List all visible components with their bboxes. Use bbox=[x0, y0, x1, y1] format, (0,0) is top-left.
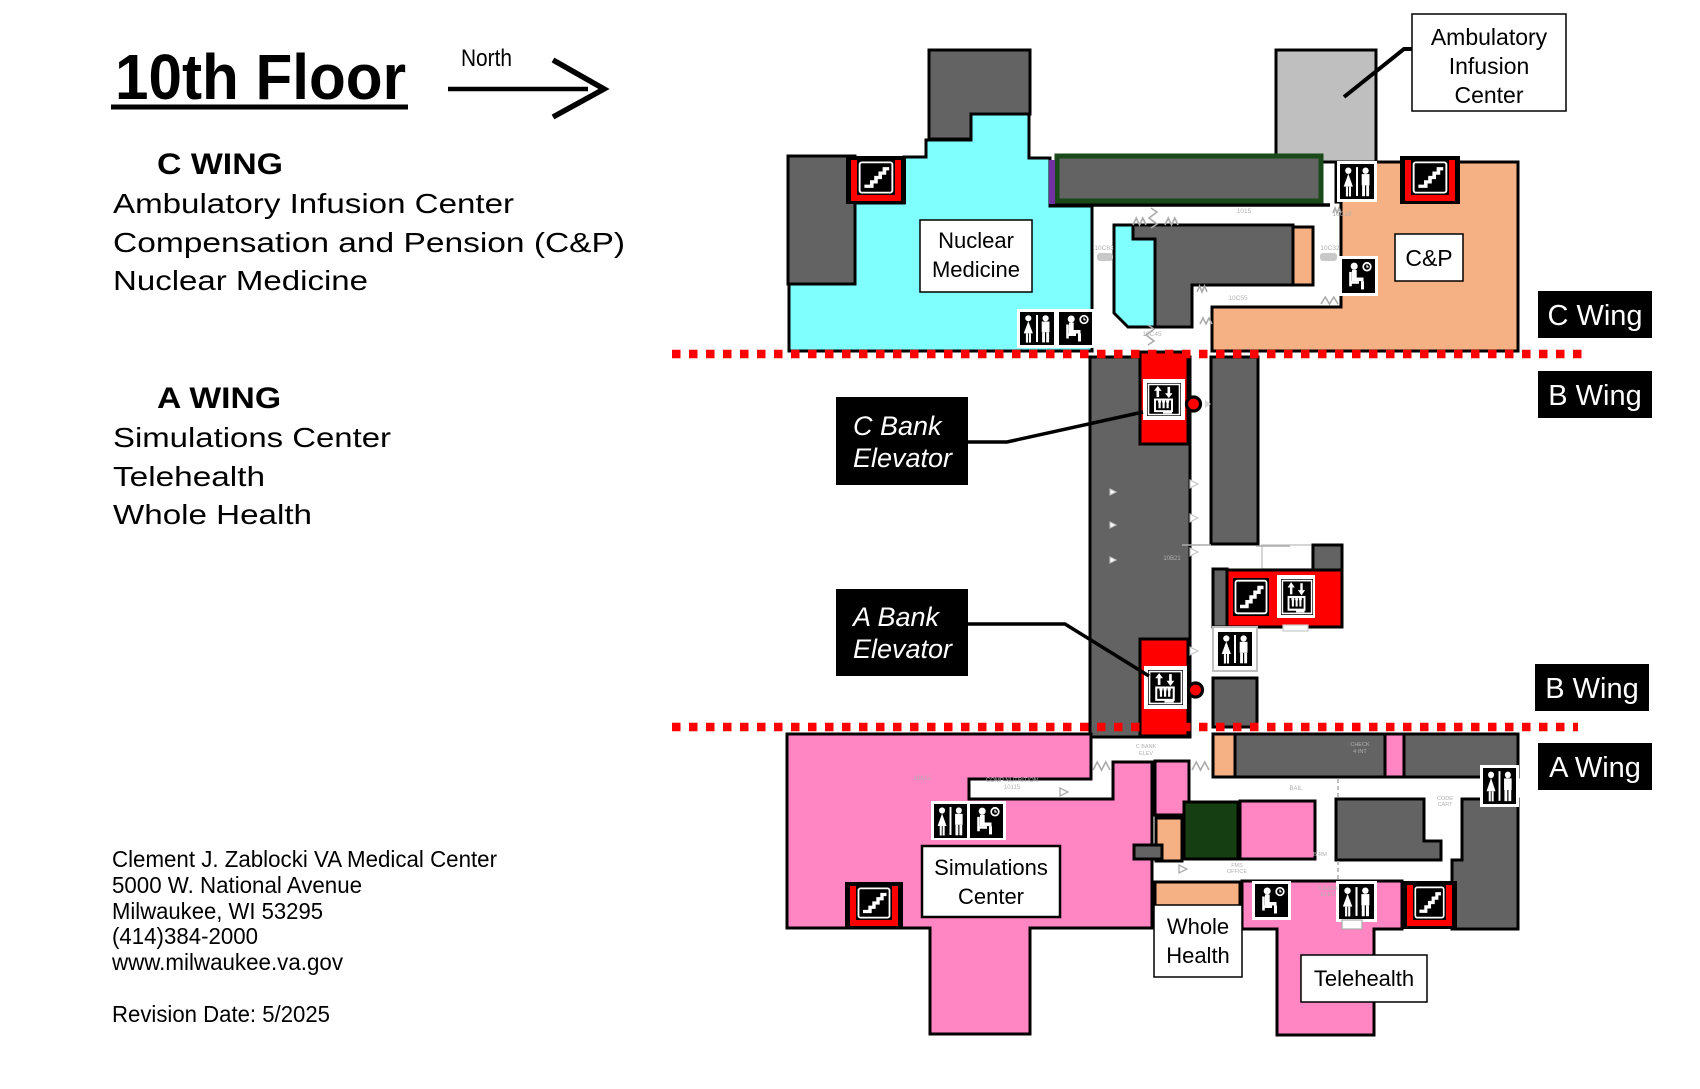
svg-text:C BANK: C BANK bbox=[1136, 744, 1157, 750]
svg-text:CHECK: CHECK bbox=[1350, 742, 1370, 748]
svg-text:Elevator: Elevator bbox=[853, 634, 953, 664]
svg-text:ELEV: ELEV bbox=[1139, 751, 1153, 757]
svg-text:B Wing: B Wing bbox=[1545, 673, 1638, 705]
svg-text:Medicine: Medicine bbox=[932, 257, 1020, 282]
svg-text:Nuclear: Nuclear bbox=[938, 228, 1014, 253]
svg-text:Infusion: Infusion bbox=[1449, 53, 1530, 79]
svg-text:10C63: 10C63 bbox=[1094, 245, 1114, 252]
svg-text:1015: 1015 bbox=[1237, 208, 1252, 215]
svg-text:A Bank: A Bank bbox=[851, 602, 941, 632]
svg-text:Telehealth: Telehealth bbox=[1314, 966, 1414, 991]
svg-text:5000 W. National Avenue: 5000 W. National Avenue bbox=[112, 872, 362, 898]
svg-text:BAIL: BAIL bbox=[1289, 786, 1303, 792]
svg-text:Ambulatory Infusion Center: Ambulatory Infusion Center bbox=[113, 188, 514, 219]
svg-text:Clement J. Zablocki VA Medical: Clement J. Zablocki VA Medical Center bbox=[112, 846, 497, 872]
svg-text:Whole Health: Whole Health bbox=[113, 499, 312, 530]
svg-text:COMP NUTRITION: COMP NUTRITION bbox=[986, 778, 1038, 784]
svg-text:Center: Center bbox=[958, 884, 1024, 909]
svg-text:www.milwaukee.va.gov: www.milwaukee.va.gov bbox=[111, 949, 343, 975]
svg-text:B RM: B RM bbox=[1313, 852, 1327, 858]
svg-text:Milwaukee, WI 53295: Milwaukee, WI 53295 bbox=[112, 898, 323, 924]
svg-text:10C32: 10C32 bbox=[1320, 245, 1340, 252]
svg-text:10115: 10115 bbox=[1004, 785, 1021, 791]
svg-text:10A12: 10A12 bbox=[913, 776, 931, 782]
svg-text:ELEV: ELEV bbox=[1321, 892, 1335, 898]
svg-text:10C55: 10C55 bbox=[1228, 295, 1248, 302]
svg-text:A Wing: A Wing bbox=[1549, 752, 1641, 784]
svg-text:Whole: Whole bbox=[1167, 914, 1229, 939]
svg-text:C Bank: C Bank bbox=[853, 411, 943, 441]
svg-text:Ambulatory: Ambulatory bbox=[1431, 24, 1548, 50]
svg-text:North: North bbox=[461, 45, 512, 72]
svg-text:C&P: C&P bbox=[1405, 245, 1452, 271]
svg-text:B Wing: B Wing bbox=[1548, 380, 1641, 412]
svg-text:Revision Date: 5/2025: Revision Date: 5/2025 bbox=[112, 1001, 330, 1027]
svg-text:10B21: 10B21 bbox=[1163, 556, 1181, 562]
svg-text:CART: CART bbox=[1438, 802, 1454, 808]
svg-text:Health: Health bbox=[1166, 943, 1230, 968]
svg-text:C Wing: C Wing bbox=[1547, 300, 1642, 332]
svg-text:10C45: 10C45 bbox=[1142, 331, 1162, 338]
svg-text:Elevator: Elevator bbox=[853, 443, 953, 473]
svg-text:(414)384-2000: (414)384-2000 bbox=[112, 923, 258, 949]
svg-text:Simulations Center: Simulations Center bbox=[113, 422, 391, 453]
svg-text:Telehealth: Telehealth bbox=[113, 461, 265, 492]
svg-text:Center: Center bbox=[1454, 82, 1523, 108]
svg-text:OFFICE: OFFICE bbox=[1227, 869, 1247, 875]
svg-text:Simulations: Simulations bbox=[934, 855, 1048, 880]
svg-text:Nuclear Medicine: Nuclear Medicine bbox=[113, 265, 368, 296]
svg-text:A WING: A WING bbox=[157, 382, 281, 415]
svg-text:10C28: 10C28 bbox=[1332, 211, 1352, 218]
svg-text:4 INT: 4 INT bbox=[1353, 749, 1367, 755]
svg-text:C WING: C WING bbox=[157, 148, 283, 181]
svg-text:10th Floor: 10th Floor bbox=[115, 41, 406, 113]
svg-text:Compensation and Pension (C&P): Compensation and Pension (C&P) bbox=[113, 227, 625, 258]
